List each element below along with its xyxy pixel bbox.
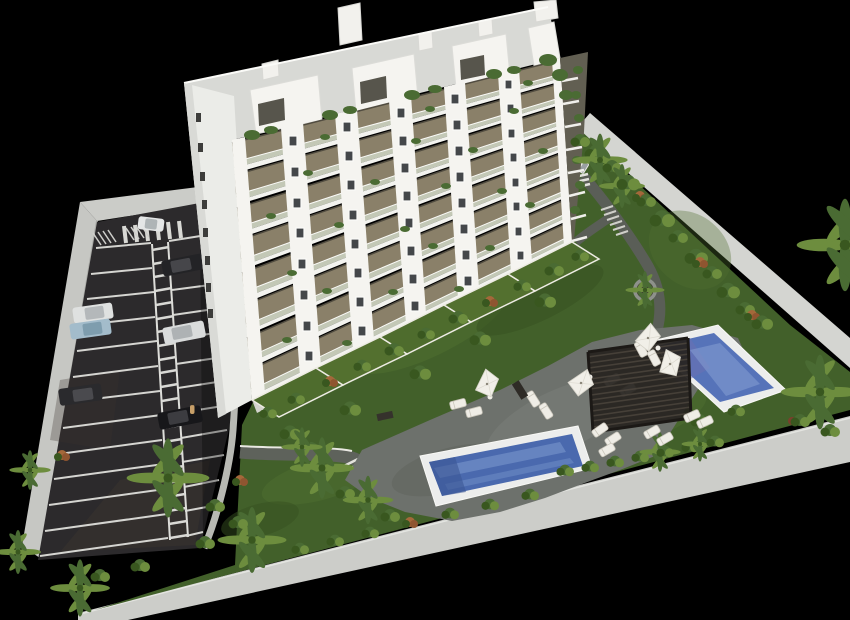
pedestrian xyxy=(190,401,195,414)
architectural-render xyxy=(0,0,850,620)
render-canvas xyxy=(0,0,850,620)
